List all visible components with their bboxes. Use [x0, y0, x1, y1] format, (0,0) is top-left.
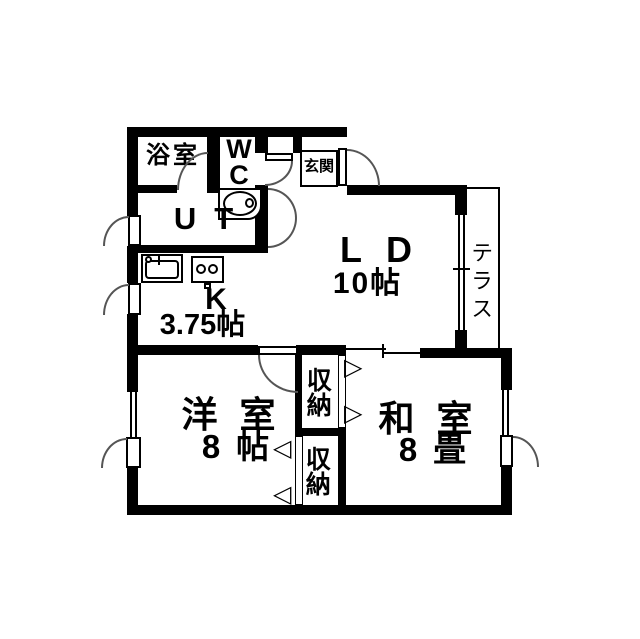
casement-window-arc	[101, 438, 127, 468]
casement-window-leaf	[128, 283, 141, 315]
living-dining-label: LD	[300, 231, 458, 269]
casement-window-leaf	[128, 215, 141, 246]
wc-label: WC	[222, 136, 256, 188]
wall-ld-right	[455, 185, 467, 215]
closet-lower-label: 収納	[303, 438, 329, 504]
western-room-door-arc	[258, 355, 298, 393]
ld-door-arc-upper	[268, 188, 297, 218]
floor-plan: 玄関 浴室 WC UT K 3.75帖 LD 10帖 テラス	[0, 0, 640, 639]
western-room-door-leaf	[258, 346, 298, 355]
wall-bathroom-right	[207, 137, 220, 193]
casement-window-arc	[513, 436, 539, 467]
entrance-door-leaf	[338, 148, 347, 186]
entrance-label: 玄関	[301, 159, 337, 175]
living-dining-area-label: 10帖	[305, 268, 430, 300]
wall-right	[501, 467, 512, 515]
western-room-area-label: 8帖	[178, 430, 301, 465]
wall-bottom	[127, 505, 512, 515]
sliding-door-tick	[382, 344, 384, 358]
window-pane	[130, 392, 132, 437]
wall-ld-top	[347, 185, 467, 195]
wall-mid-east	[420, 348, 512, 358]
terrace-label: テラス	[469, 225, 492, 340]
hall-door-leaf	[265, 153, 293, 161]
folding-door-icon: ▷	[344, 356, 362, 380]
wall-ut-bottom	[137, 245, 268, 253]
wall-left	[127, 127, 138, 216]
terrace-sliding-window	[458, 215, 460, 330]
japanese-room-area-label: 8畳	[375, 433, 498, 468]
entrance-door-arc	[347, 149, 380, 186]
stove-burner-icon	[196, 264, 206, 274]
kitchen-area-label: 3.75帖	[135, 310, 270, 340]
casement-window-leaf	[500, 435, 513, 467]
wall-closet-top	[296, 345, 346, 355]
sink-faucet-icon	[145, 256, 152, 263]
sink-basin-icon	[145, 260, 179, 279]
window-pane	[135, 392, 137, 437]
wall-mid-west	[137, 345, 258, 355]
sink-faucet-stem	[158, 255, 160, 265]
casement-window-leaf	[126, 437, 141, 468]
sliding-door-track	[383, 352, 420, 354]
wall-bathroom-bottom	[127, 185, 177, 193]
stove-burner-icon	[208, 264, 218, 274]
folding-door-icon: ◁	[273, 483, 291, 507]
wall-wc-right	[255, 137, 268, 153]
sliding-door-track	[346, 348, 386, 350]
utility-label: UT	[150, 203, 265, 236]
casement-window-arc	[103, 216, 129, 246]
casement-window-arc	[103, 284, 129, 315]
wall-closet-lower-right	[338, 436, 346, 505]
ld-door-arc-lower	[268, 218, 297, 248]
terrace-sliding-window	[463, 215, 465, 330]
hall-door-arc	[265, 161, 293, 186]
